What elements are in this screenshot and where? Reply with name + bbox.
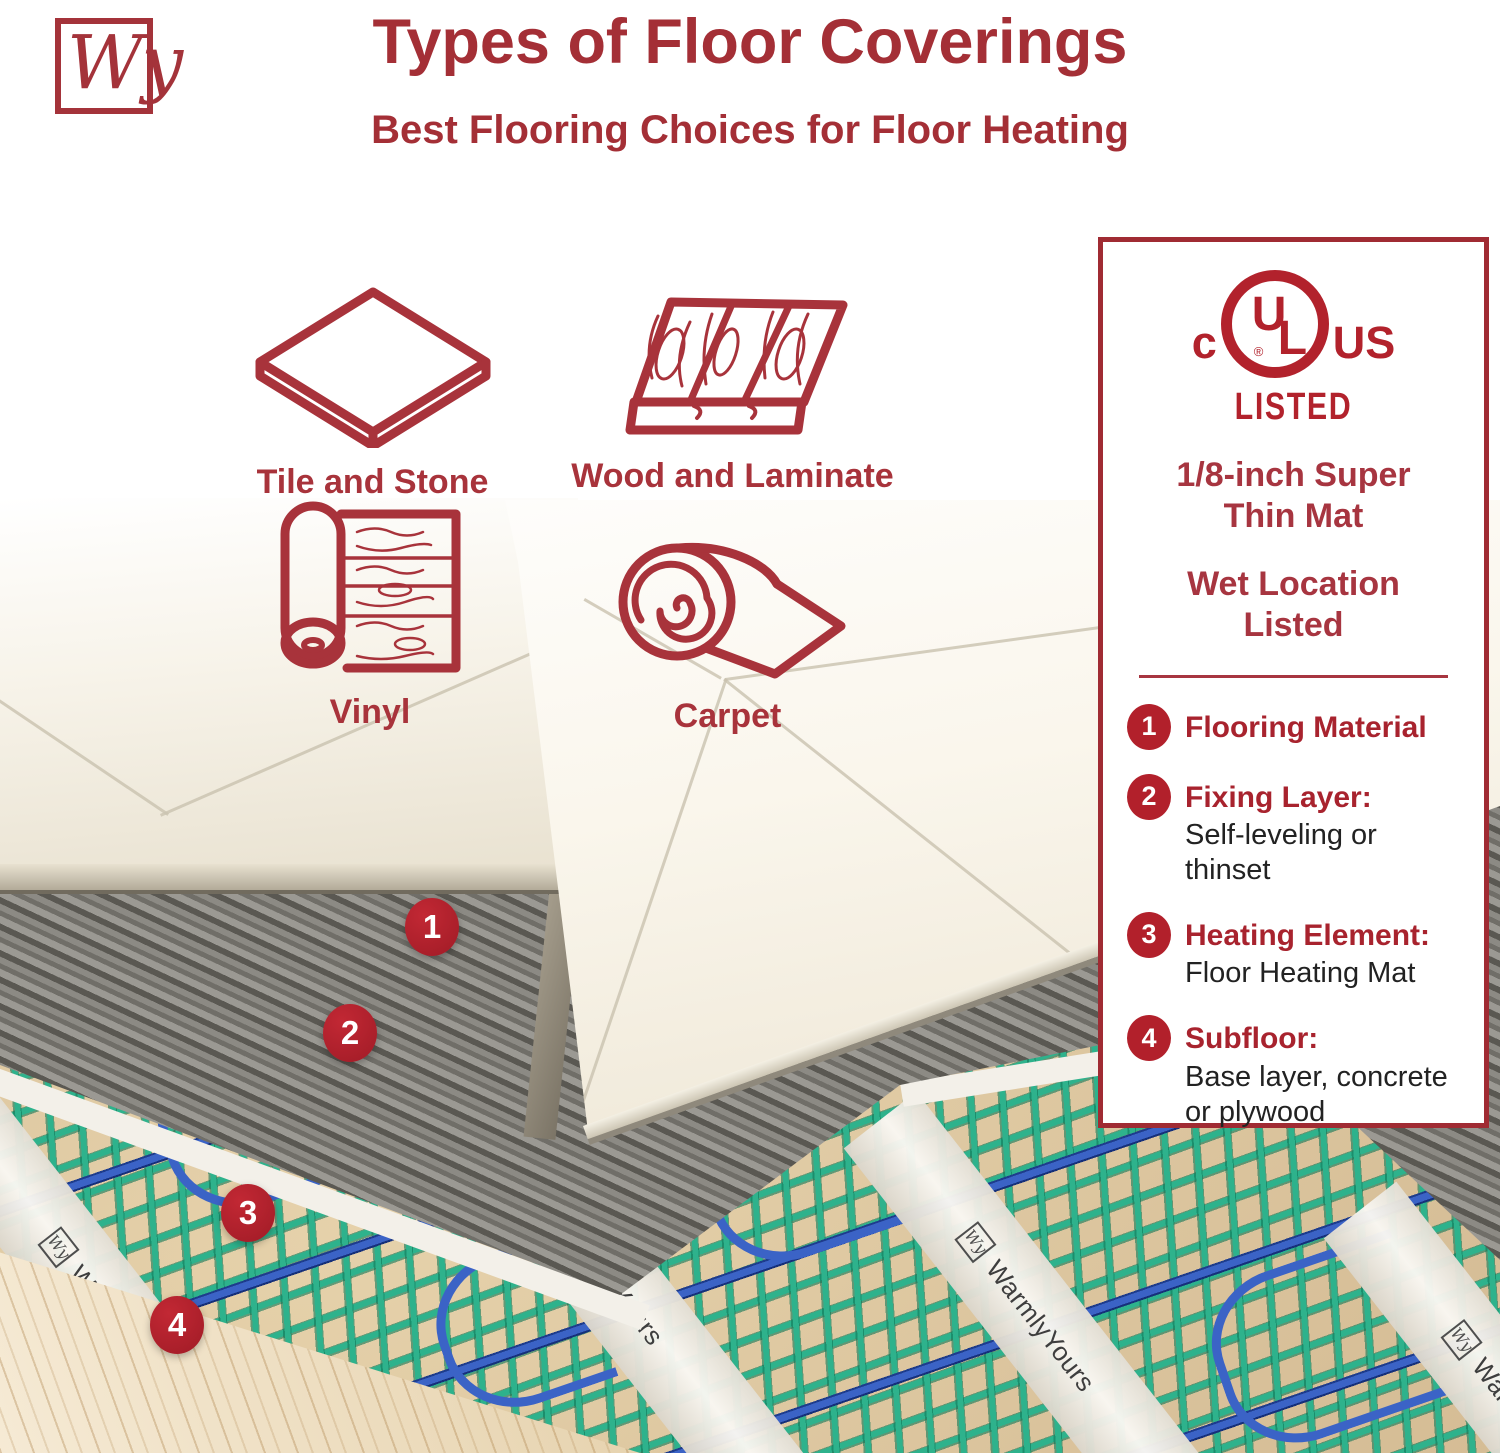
floor-type-vinyl: Vinyl [250,498,490,732]
floor-type-wood-and-laminate: Wood and Laminate [570,292,895,496]
floor-type-label: Vinyl [250,693,490,732]
legend-item-flooring-material: 1 Flooring Material [1127,704,1460,750]
legend-text: Subfloor: Base layer, concrete or plywoo… [1185,1015,1460,1129]
legend-text: Flooring Material [1185,704,1427,750]
legend-bullet: 1 [1127,704,1171,750]
marker-number: 1 [423,908,441,946]
legend-item-fixing-layer: 2 Fixing Layer: Self-leveling or thinset [1127,774,1460,888]
warmlyyours-logo-icon: Wy [37,1226,79,1268]
floor-type-label: Wood and Laminate [570,457,895,496]
legend-description: Self-leveling or thinset [1185,818,1460,888]
tile-front-edge [0,864,578,894]
floor-type-label: Carpet [590,697,865,736]
layer-marker-2: 2 [323,1004,377,1062]
legend-bullet: 2 [1127,774,1171,820]
page-subtitle: Best Flooring Choices for Floor Heating [0,108,1500,153]
legend-bullet: 3 [1127,912,1171,958]
layer-legend-list: 1 Flooring Material 2 Fixing Layer: Self… [1127,704,1460,1129]
registered-symbol: ® [1254,344,1264,359]
wood-icon [608,292,858,442]
legend-title: Fixing Layer: [1185,781,1460,816]
grout-line [0,696,169,816]
ul-circle-icon: U L ® [1221,270,1329,378]
feature-thin-mat: 1/8-inch Super Thin Mat [1154,455,1434,538]
ul-certification-mark: c U L ® US [1127,270,1460,378]
legend-bullet: 4 [1127,1015,1171,1061]
legend-item-subfloor: 4 Subfloor: Base layer, concrete or plyw… [1127,1015,1460,1129]
marker-number: 2 [341,1014,359,1052]
vinyl-icon [275,498,465,678]
ul-letter-l: L [1278,311,1307,366]
carpet-icon [605,520,850,682]
ul-listed-label: LISTED [1160,386,1426,429]
panel-divider [1139,675,1448,678]
ul-prefix: c [1192,320,1217,365]
legend-text: Fixing Layer: Self-leveling or thinset [1185,774,1460,888]
marker-number: 3 [239,1194,257,1232]
marker-number: 4 [168,1306,186,1344]
legend-title: Subfloor: [1185,1022,1460,1057]
infographic-page: Wy WarmlyYours Wy WarmlyYours Wy WarmlyY… [0,0,1500,1453]
layer-marker-3: 3 [221,1184,275,1242]
feature-wet-location: Wet Location Listed [1169,564,1419,647]
layer-marker-4: 4 [150,1296,204,1354]
legend-title: Heating Element: [1185,919,1430,954]
page-title: Types of Floor Coverings [0,6,1500,78]
warmlyyours-logo-icon: Wy [1441,1319,1483,1361]
legend-description: Base layer, concrete or plywood [1185,1060,1460,1130]
layer-marker-1: 1 [405,898,459,956]
grout-line [578,678,728,1113]
legend-description: Floor Heating Mat [1185,956,1430,991]
warmlyyours-logo-icon: Wy [954,1221,996,1263]
floor-type-label: Tile and Stone [220,463,525,502]
floor-type-tile-and-stone: Tile and Stone [220,286,525,502]
ul-suffix: US [1333,320,1396,365]
legend-title: Flooring Material [1185,711,1427,746]
floor-type-carpet: Carpet [590,520,865,736]
tile-icon [253,286,493,448]
product-info-panel: c U L ® US LISTED 1/8-inch Super Thin Ma… [1098,237,1489,1128]
legend-item-heating-element: 3 Heating Element: Floor Heating Mat [1127,912,1460,991]
legend-text: Heating Element: Floor Heating Mat [1185,912,1430,991]
